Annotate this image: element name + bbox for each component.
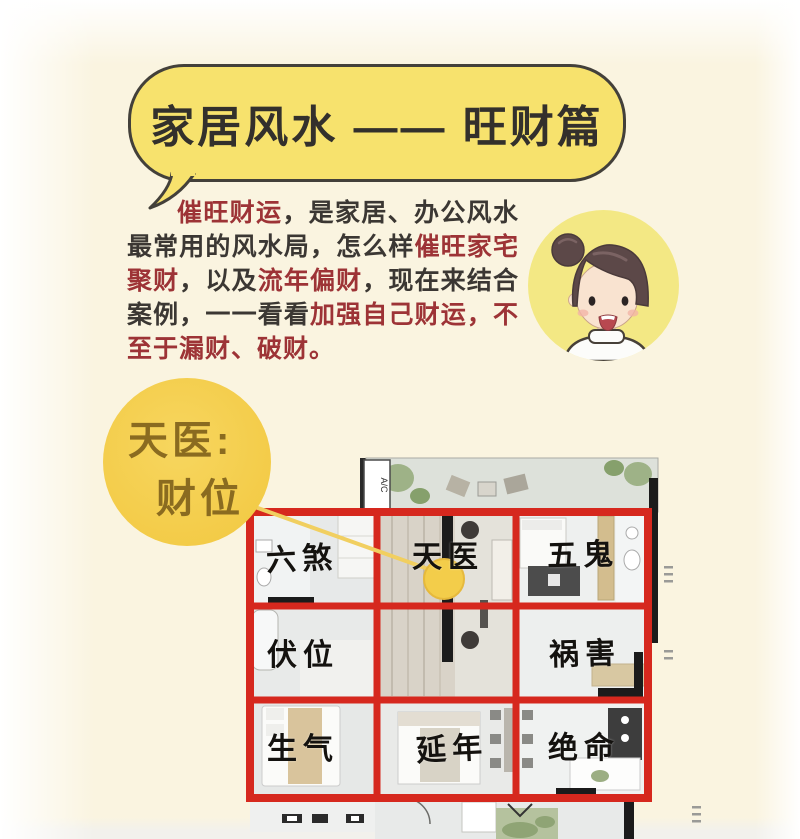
balcony: A/C xyxy=(360,458,658,512)
woman-avatar-illustration xyxy=(528,210,679,361)
avatar xyxy=(528,210,679,361)
grid-cell-label-tian-yi: 天医 xyxy=(412,532,484,576)
grid-cell-label-fu-wei: 伏位 xyxy=(267,630,339,674)
poster: A/C xyxy=(0,0,800,839)
grid-cell-label-jue-ming: 绝命 xyxy=(548,723,620,767)
grid-cell-label-yan-nian: 延年 xyxy=(415,722,489,770)
wealth-position-badge: 天医: 财位 xyxy=(103,378,271,546)
entry-area xyxy=(250,798,624,839)
grid-cell-label-wu-gui: 五鬼 xyxy=(546,529,619,575)
ac-unit-label: A/C xyxy=(379,477,389,493)
grid-cell-label-huo-hai: 祸害 xyxy=(548,628,621,674)
bubble-tail xyxy=(148,171,204,211)
title-bubble: 家居风水 —— 旺财篇 xyxy=(128,64,626,182)
intro-segment: 流年偏财 xyxy=(258,267,363,295)
grid-cell-label-sheng-qi: 生气 xyxy=(267,724,339,768)
badge-line-1: 天医: xyxy=(128,408,233,466)
intro-segment: ，以及 xyxy=(179,267,257,295)
badge-line-2: 财位 xyxy=(156,466,244,524)
dimension-ticks xyxy=(664,566,701,823)
intro-paragraph: 催旺财运，是家居、办公风水最常用的风水局，怎么样催旺家宅聚财，以及流年偏财，现在… xyxy=(127,196,519,366)
page-title: 家居风水 —— 旺财篇 xyxy=(150,91,603,155)
grid-cell-label-liu-sha: 六煞 xyxy=(265,532,339,580)
